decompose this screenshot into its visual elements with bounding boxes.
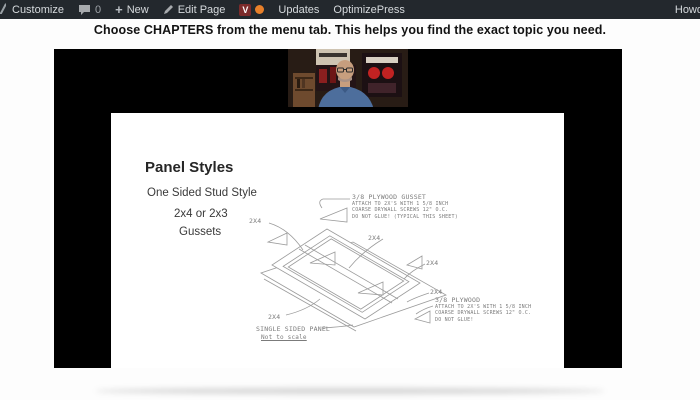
- admin-bar-plugin[interactable]: V: [232, 0, 271, 19]
- customize-label: Customize: [12, 4, 64, 16]
- label-2x4-bottom: 2X4: [268, 313, 280, 321]
- gusset-annotation-line4: DO NOT GLUE! (TYPICAL THIS SHEET): [352, 214, 458, 220]
- wp-admin-bar: Customize 0 + New Edit Page V Updates Op…: [0, 0, 700, 19]
- plywood-annotation-line4: DO NOT GLUE!: [435, 317, 531, 323]
- admin-bar-new[interactable]: + New: [108, 0, 156, 19]
- admin-bar-optimizepress[interactable]: OptimizePress: [326, 0, 412, 19]
- page-headline: Choose CHAPTERS from the menu tab. This …: [0, 23, 700, 37]
- label-2x4-middle: 2X4: [368, 234, 380, 242]
- notification-dot-icon: [255, 5, 264, 14]
- video-player[interactable]: Panel Styles One Sided Stud Style 2x4 or…: [54, 49, 622, 368]
- screen: Customize 0 + New Edit Page V Updates Op…: [0, 0, 700, 400]
- admin-bar-comments[interactable]: 0: [71, 0, 108, 19]
- presenter-webcam-scene: [288, 49, 408, 110]
- admin-bar-updates[interactable]: Updates: [271, 0, 326, 19]
- panel-scale-note: Not to scale: [261, 334, 307, 342]
- label-2x4-right1: 2X4: [426, 259, 438, 267]
- gusset-annotation-line1: 3/8 PLYWOOD GUSSET: [352, 193, 458, 201]
- label-2x4-topleft: 2X4: [249, 217, 261, 225]
- plus-icon: +: [115, 3, 123, 16]
- comment-bubble-icon: [78, 4, 91, 15]
- page-shadow: [95, 388, 605, 394]
- partial-icon: [0, 3, 6, 14]
- label-2x4-right2: 2X4: [430, 288, 442, 296]
- slide: Panel Styles One Sided Stud Style 2x4 or…: [111, 113, 564, 368]
- pencil-icon: [163, 4, 174, 15]
- gusset-annotation: 3/8 PLYWOOD GUSSET ATTACH TO 2X'S WITH 1…: [352, 193, 458, 220]
- optimizepress-label: OptimizePress: [333, 4, 405, 16]
- gusset-annotation-line3: COARSE DRYWALL SCREWS 12" O.C.: [352, 207, 458, 213]
- new-label: New: [127, 4, 149, 16]
- updates-label: Updates: [278, 4, 319, 16]
- webcam-overlay: [288, 49, 408, 110]
- comments-count: 0: [95, 4, 101, 16]
- plywood-annotation-line1: 3/8 PLYWOOD: [435, 296, 531, 304]
- howdy-label: Howd: [675, 4, 700, 16]
- shelf: [293, 73, 315, 110]
- plugin-icon: V: [239, 4, 251, 16]
- edit-page-label: Edit Page: [178, 4, 226, 16]
- plywood-annotation: 3/8 PLYWOOD ATTACH TO 2X'S WITH 1 5/8 IN…: [435, 296, 531, 323]
- admin-bar-howdy[interactable]: Howd: [668, 0, 700, 19]
- admin-bar-edit-page[interactable]: Edit Page: [156, 0, 233, 19]
- panel-caption: SINGLE SIDED PANEL: [256, 325, 330, 333]
- plywood-annotation-line3: COARSE DRYWALL SCREWS 12" O.C.: [435, 310, 531, 316]
- admin-bar-customize[interactable]: Customize: [5, 0, 71, 19]
- panel-drawing: [111, 113, 564, 368]
